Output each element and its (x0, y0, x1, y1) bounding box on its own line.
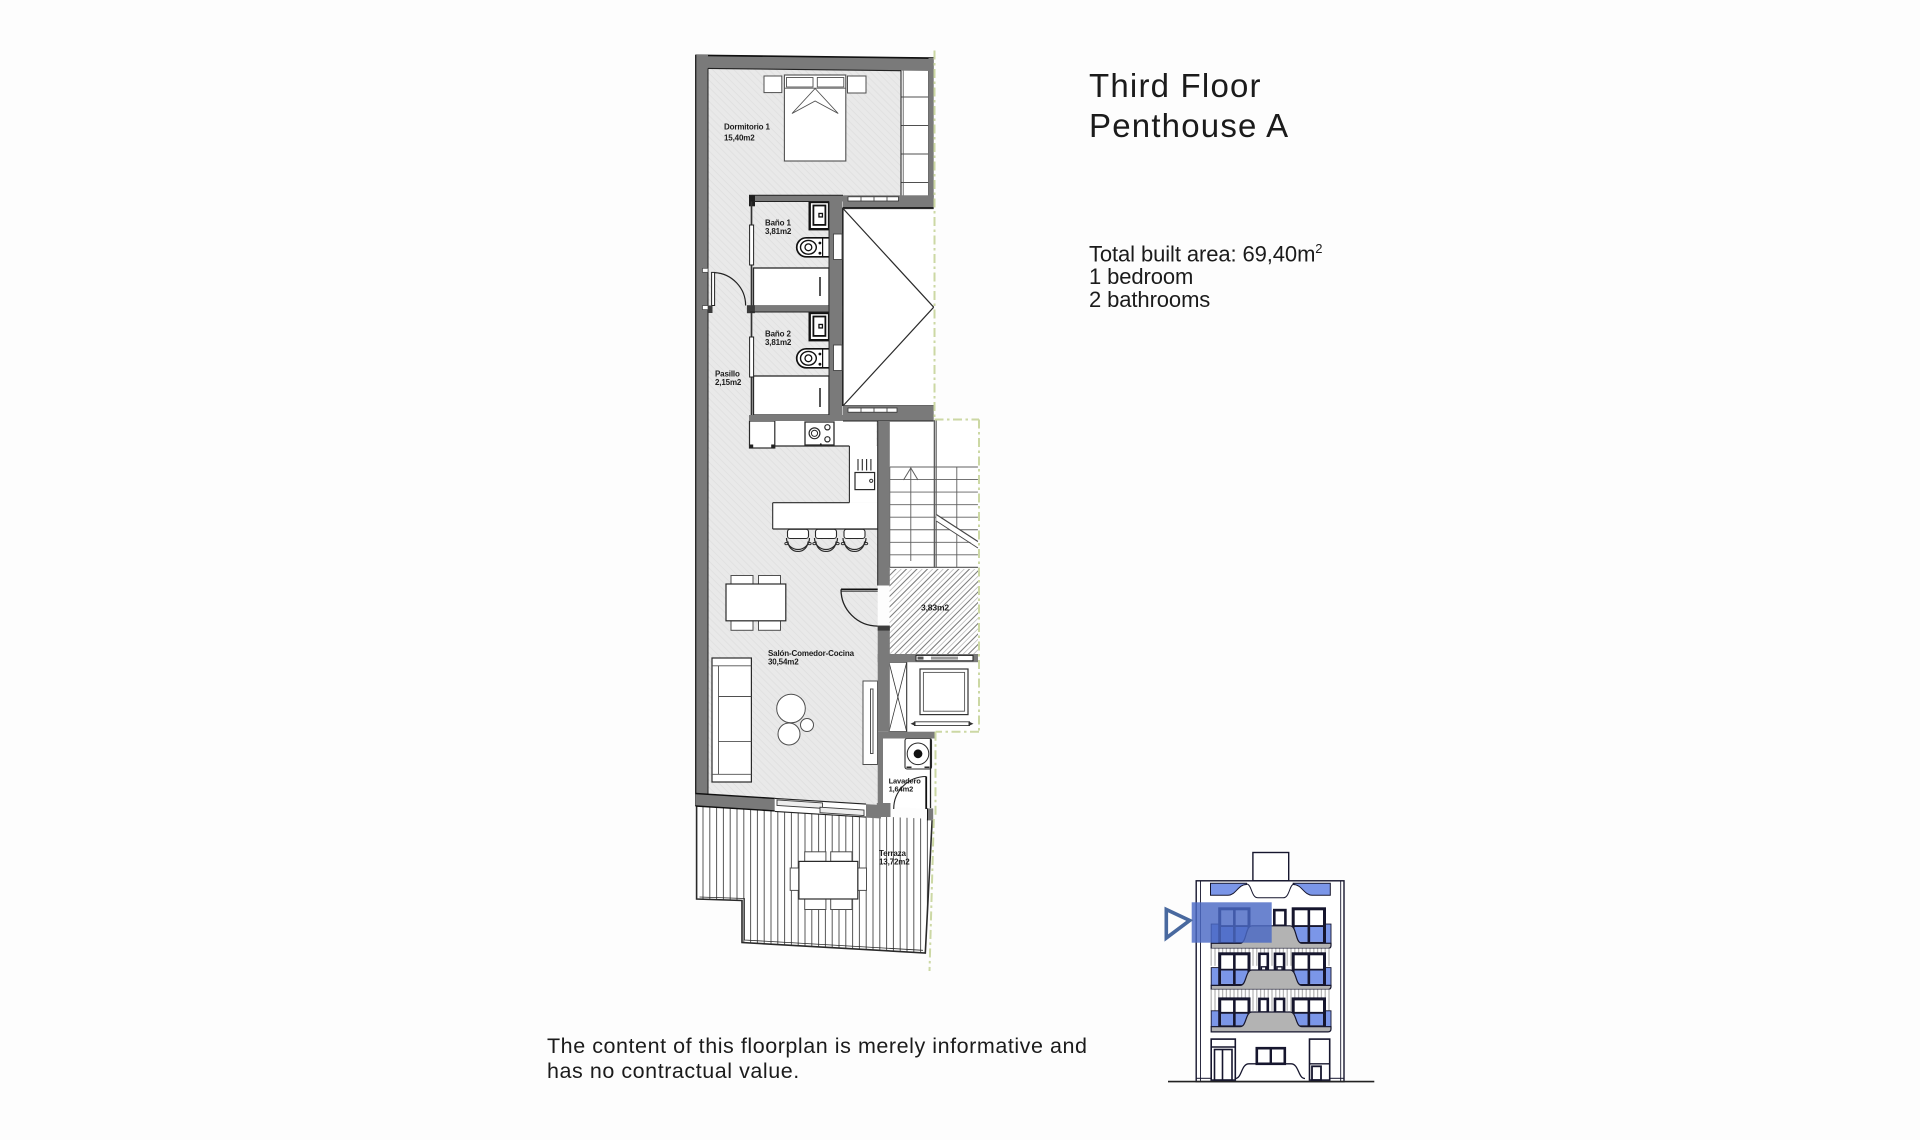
svg-text:13,72m2: 13,72m2 (879, 858, 910, 867)
svg-text:30,54m2: 30,54m2 (768, 658, 799, 667)
svg-text:3,81m2: 3,81m2 (765, 338, 792, 347)
svg-text:3,83m2: 3,83m2 (921, 603, 949, 613)
svg-text:2,15m2: 2,15m2 (715, 378, 742, 387)
svg-text:3,81m2: 3,81m2 (765, 227, 792, 236)
svg-text:Dormitorio 1: Dormitorio 1 (724, 123, 770, 132)
svg-text:1,64m2: 1,64m2 (889, 785, 914, 794)
svg-text:15,40m2: 15,40m2 (724, 134, 755, 143)
